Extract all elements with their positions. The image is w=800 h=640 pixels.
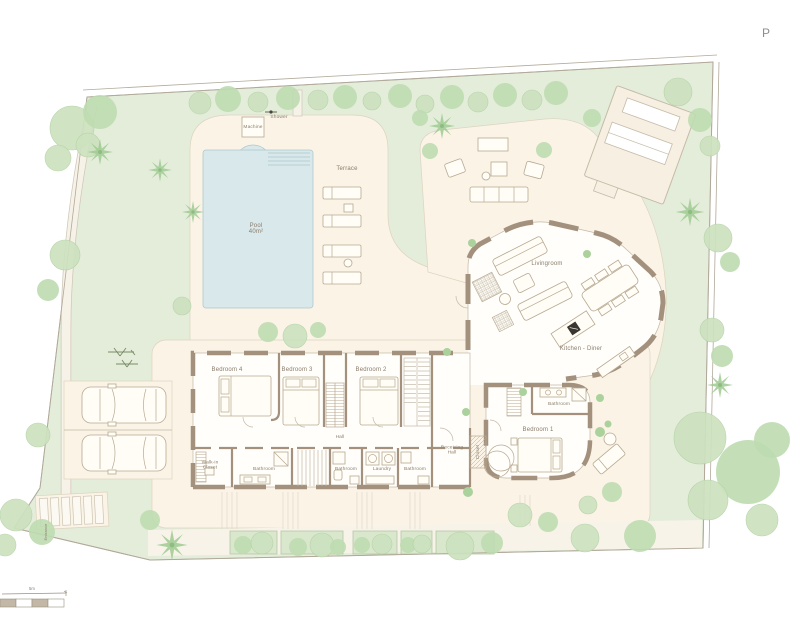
label-machine-room: Machine (243, 125, 262, 130)
label-walkin-closet: Walk-inCloset (202, 460, 219, 470)
label-bedroom-1: Bedroom 1 (523, 427, 554, 433)
site-plan-canvas (0, 0, 800, 640)
label-bedroom-3: Bedroom 3 (282, 367, 313, 373)
label-terrace: Terrace (336, 166, 357, 172)
label-closet: Closet (476, 445, 481, 459)
car-2 (82, 432, 166, 474)
car-1 (82, 384, 166, 426)
label-pool: Pool40m² (249, 223, 263, 235)
label-bathroom-west: Bathroom (253, 467, 275, 472)
label-kitchen-diner: Kitchen - Diner (560, 346, 602, 352)
floor-plan-page: P Pool40m² Machine Shower Terrace Living… (0, 0, 800, 640)
label-bathroom-mid: Bathroom (335, 467, 357, 472)
label-shower: Shower (270, 115, 287, 120)
label-laundry: Laundry (373, 467, 391, 472)
label-entrance: Entrance (44, 524, 48, 541)
corner-title-fragment: P (762, 26, 770, 40)
label-bathroom-master: Bathroom (548, 402, 570, 407)
label-hall: Hall (336, 435, 345, 440)
label-receiving-hall: ReceivingHall (441, 445, 463, 455)
label-bathroom-east: Bathroom (404, 467, 426, 472)
label-livingroom: Livingroom (531, 261, 562, 267)
stairs-upper (404, 358, 430, 426)
label-bedroom-4: Bedroom 4 (212, 367, 243, 373)
scale-bar (0, 590, 67, 607)
label-bedroom-2: Bedroom 2 (356, 367, 387, 373)
label-scale: 5m (29, 587, 35, 591)
